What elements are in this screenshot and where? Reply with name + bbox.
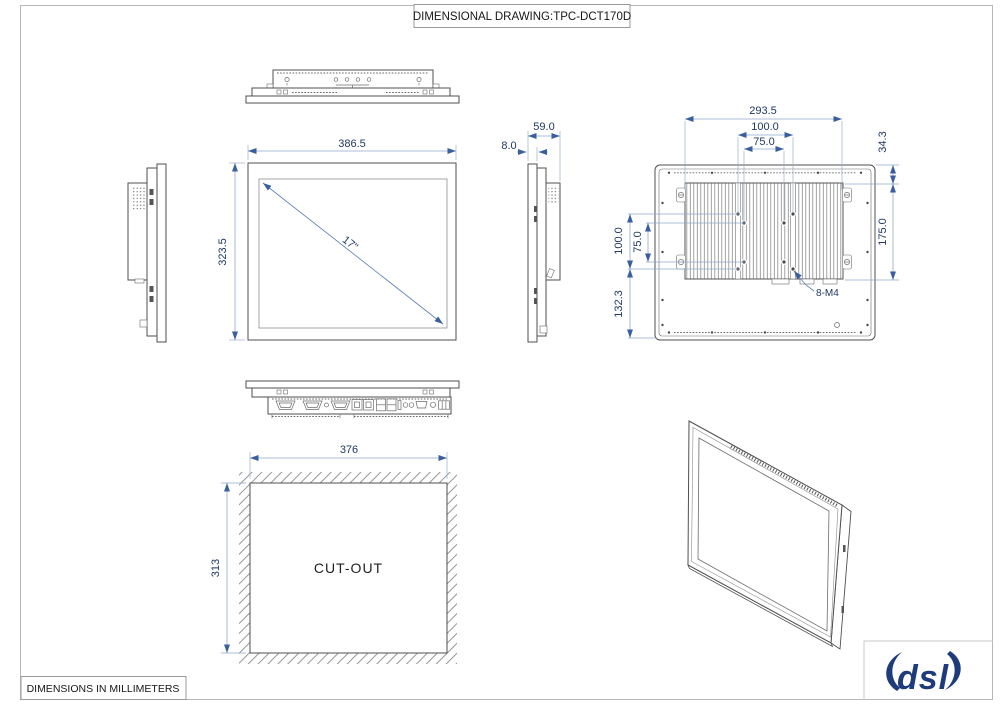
right-foot [540,326,547,333]
vesa100-height-dim: 100.0 [613,227,625,255]
rear-top-offset-dim: 34.3 [877,131,889,152]
cutout-height-dim: 313 [210,559,222,577]
bezel-thickness-dim: 8.0 [501,140,516,152]
top-glass [246,96,459,103]
vesa75-width-dim: 75.0 [753,136,774,148]
right-side-view: 59.0 8.0 [501,121,560,342]
top-view [246,70,459,103]
bottom-brackets [272,415,448,418]
depth-dim: 59.0 [533,121,554,133]
mount-holes-label: 8-M4 [816,288,839,299]
left-side-view [128,164,166,342]
rear-foot [823,279,837,284]
left-foot [140,320,147,327]
left-bezel [157,164,166,342]
heatsink [685,183,843,279]
rear-width-dim: 293.5 [749,105,777,117]
right-vent-grid [549,186,559,204]
vesa75-height-dim: 75.0 [632,231,644,252]
left-vent-grid [131,186,145,210]
drawing-title: DIMENSIONAL DRAWING:TPC-DCT170D [413,11,631,23]
vesa100-width-dim: 100.0 [751,121,779,133]
rear-foot [800,279,814,284]
drawing-canvas: DIMENSIONAL DRAWING:TPC-DCT170D DIMENSIO… [0,0,1000,707]
top-bezel [252,88,450,96]
footer-block: DIMENSIONS IN MILLIMETERS [21,677,186,700]
right-bezel [528,164,537,342]
title-block: DIMENSIONAL DRAWING:TPC-DCT170D [413,5,631,28]
units-note: DIMENSIONS IN MILLIMETERS [27,683,180,695]
front-view: 17" 386.5 323.5 [217,138,456,340]
front-height-dim: 323.5 [217,238,229,266]
dsl-logo: dsl [886,651,961,697]
isometric-view [688,421,851,649]
logo-block: dsl [864,641,993,700]
cutout-width-dim: 376 [340,444,358,456]
rear-side-height-dim: 175.0 [877,218,889,246]
front-width-dim: 386.5 [338,138,366,150]
logo-text: dsl [897,659,950,697]
bottom-glass [246,381,459,388]
rear-view: 293.5 100.0 75.0 34.3 175.0 100.0 75.0 1… [613,105,899,340]
drawing-border [21,6,993,700]
bottom-view [246,381,459,418]
rear-bottom-offset-dim: 132.3 [613,290,625,318]
cutout-view: CUT-OUT 376 313 [210,444,457,664]
bottom-bezel [252,388,450,397]
right-chassis-plate [537,168,546,336]
rear-foot [772,279,789,284]
cutout-label: CUT-OUT [314,560,383,576]
